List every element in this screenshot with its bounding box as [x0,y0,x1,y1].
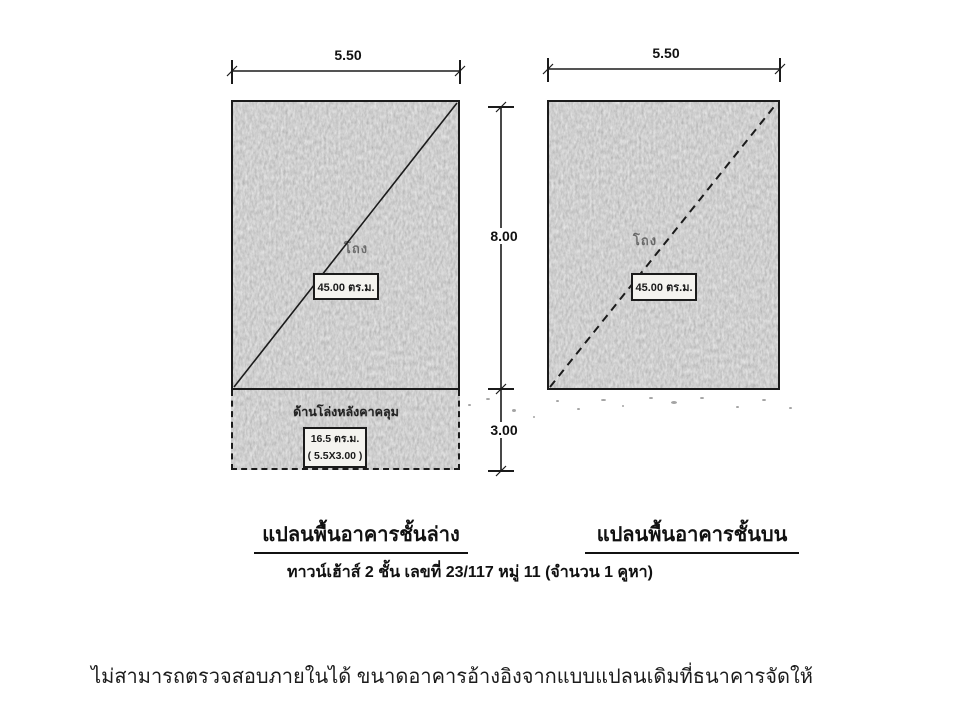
building-description: ทาวน์เฮ้าส์ 2 ชั้น เลขที่ 23/117 หมู่ 11… [180,560,760,585]
upper-plan-hall-label: โถง [615,230,675,251]
upper-plan-area-box: 45.00 ตร.ม. [631,273,697,301]
scanned-floor-plan-page: 5.50 5.50 8.00 3.00 โถง 45.00 ตร.ม. ด้าน… [0,0,960,720]
width-dimension-label-upper: 5.50 [633,45,699,61]
main-height-dimension-label: 8.00 [481,228,527,244]
upper-plan-caption: แปลนพื้นอาคารชั้นบน [585,518,799,554]
lower-plan-hall-label: โถง [326,238,386,259]
lower-plan-annex-box: 16.5 ตร.ม. ( 5.5X3.00 ) [303,427,367,468]
lower-plan-area-box: 45.00 ตร.ม. [313,273,379,300]
lower-floor-plan: โถง 45.00 ตร.ม. ด้านโล่งหลังคาคลุม 16.5 … [231,100,460,470]
lower-plan-annex-area: 16.5 ตร.ม. [305,431,365,448]
lower-plan-annex-title: ด้านโล่งหลังคาคลุม [266,402,426,422]
lower-plan-caption: แปลนพื้นอาคารชั้นล่าง [254,518,468,554]
annex-height-dimension-label: 3.00 [481,422,527,438]
width-dimension-label-lower: 5.50 [315,47,381,63]
upper-floor-plan: โถง 45.00 ตร.ม. [547,100,780,390]
inspection-remark: ไม่สามารถตรวจสอบภายในได้ ขนาดอาคารอ้างอิ… [0,660,904,692]
lower-plan-annex-size: ( 5.5X3.00 ) [305,448,365,465]
